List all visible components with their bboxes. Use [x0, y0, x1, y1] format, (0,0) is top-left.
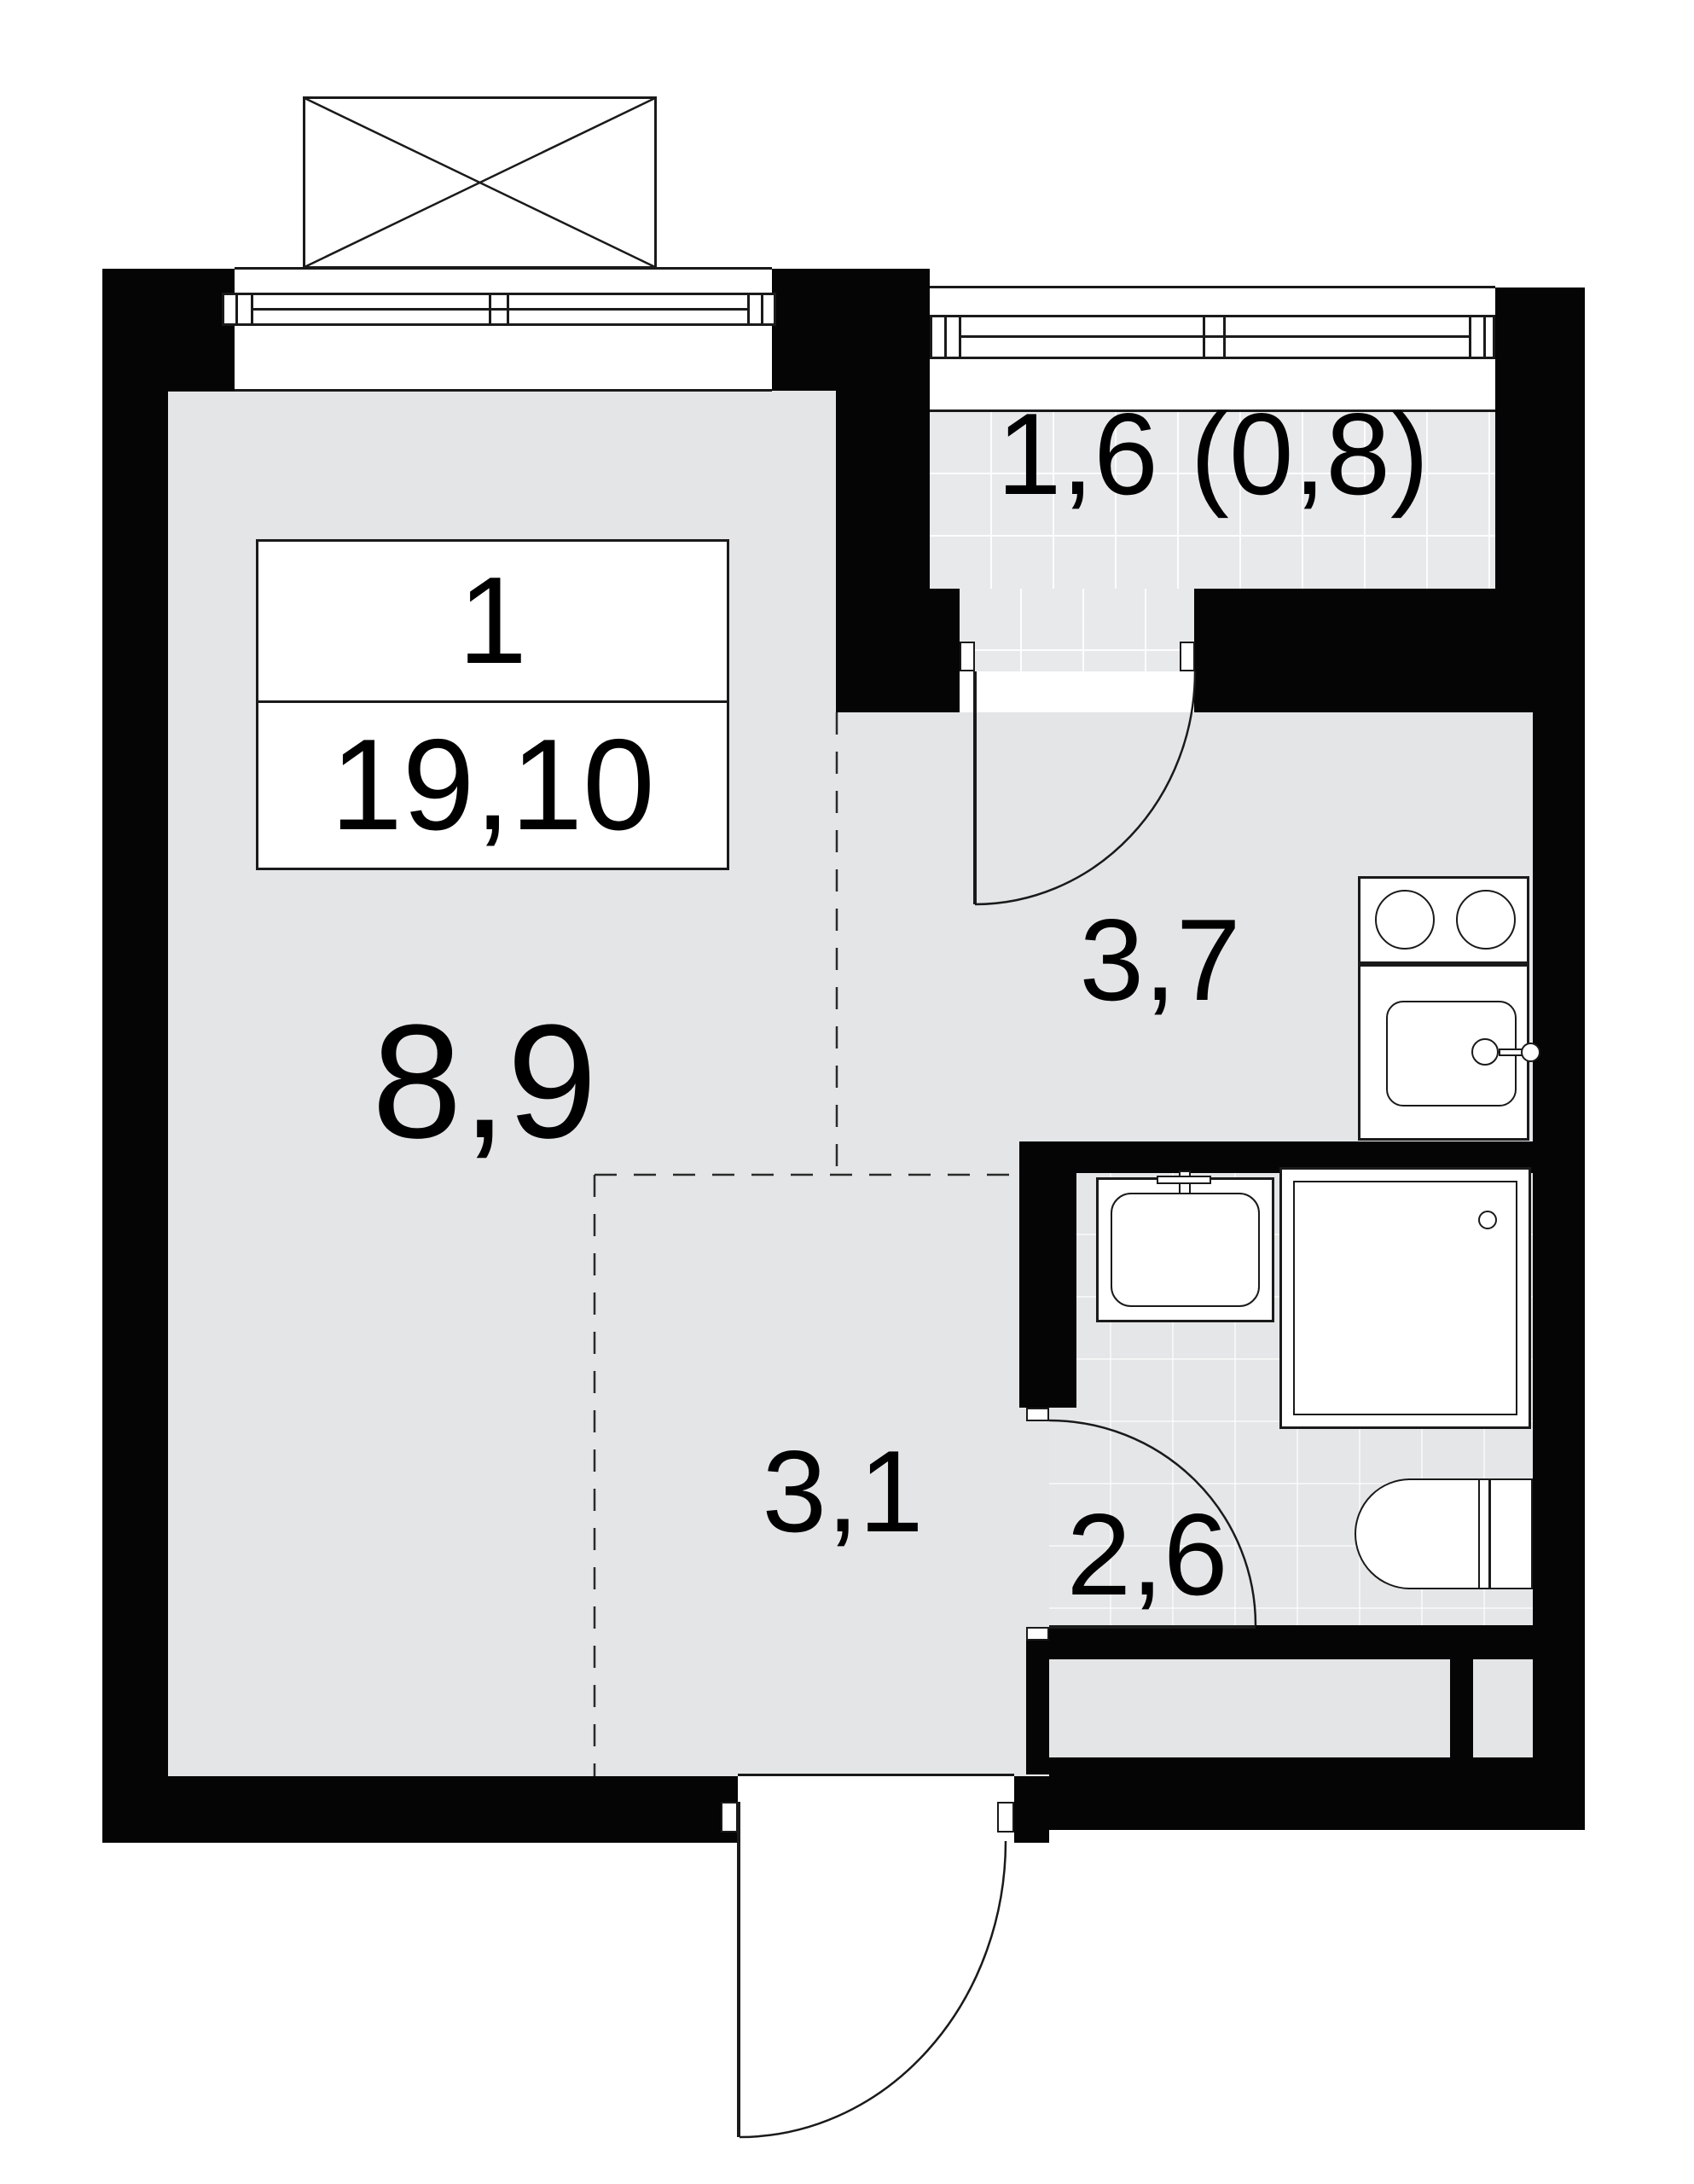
entrance-door-leaf [737, 1802, 740, 2137]
toilet-tank [1478, 1478, 1533, 1589]
unit-total-area: 19,10 [258, 703, 727, 868]
balcony-door-threshold [960, 589, 1194, 671]
toilet-bowl [1355, 1478, 1481, 1589]
entry-floor-edge [738, 1774, 1014, 1776]
balcony-door-jamb [1180, 642, 1195, 671]
wall-balcony-door-right [1194, 589, 1495, 712]
living-window-mullion [251, 293, 253, 326]
wall-balcony-door-left-stub [836, 589, 960, 712]
balcony-window-mullion [1203, 315, 1205, 359]
wall-window-right-header [772, 269, 930, 391]
ac-unit-marker [303, 96, 657, 269]
vestibule-niche-left [1049, 1659, 1450, 1757]
balcony-door-leaf [973, 671, 977, 904]
balcony-window-mullion [944, 315, 947, 359]
kitchen-area-label: 3,7 [1079, 902, 1240, 1018]
living-window-mullion [761, 293, 763, 326]
balcony-window-mid-rail [959, 335, 1469, 338]
bathroom-faucet-bar [1157, 1176, 1211, 1184]
entrance-door-jamb [997, 1802, 1014, 1833]
wall-bottom-entry-right [1014, 1776, 1049, 1843]
living-window-mullion [507, 293, 509, 326]
wall-balcony-right [1495, 288, 1585, 712]
entrance-door-swing-arc [740, 1841, 1006, 2137]
hall-area-label: 3,1 [762, 1433, 923, 1549]
bathroom-door-leaf [1049, 1625, 1256, 1629]
vestibule-niche-right [1473, 1659, 1533, 1757]
wall-bathroom-left-upper [1019, 1173, 1076, 1408]
unit-rooms-count: 1 [258, 542, 727, 703]
living-window-mid-rail [251, 308, 747, 311]
wall-top-left-corner [102, 269, 235, 391]
balcony-window-mullion [1469, 315, 1471, 359]
wall-right [1533, 712, 1585, 1830]
stove-burner [1375, 890, 1435, 950]
facade-line-balcony [930, 286, 1495, 288]
kitchen-faucet [1471, 1038, 1499, 1066]
wall-bottom-right [1049, 1757, 1585, 1830]
balcony-window-mullion [1483, 315, 1486, 359]
bathroom-door-threshold [1026, 1408, 1049, 1641]
balcony-door-jamb [960, 642, 975, 671]
wall-balcony-left [836, 391, 930, 589]
living-window-mullion [489, 293, 491, 326]
bathroom-door-jamb [1026, 1408, 1049, 1421]
wall-bathroom-bottom [1049, 1625, 1533, 1659]
floor-plan: 1 19,10 8,9 3,7 3,1 2,6 1,6 (0,8) [0, 0, 1694, 2184]
living-window-mullion [747, 293, 750, 326]
bathroom-door-jamb [1026, 1627, 1049, 1641]
entrance-door-jamb [721, 1802, 738, 1833]
living-room-area-label: 8,9 [372, 1001, 597, 1163]
wall-bathroom-left-lower [1026, 1641, 1049, 1774]
living-window-mullion [235, 293, 238, 326]
wall-left [102, 269, 168, 1843]
shower-drain [1478, 1211, 1497, 1229]
kitchen-faucet-knob [1521, 1043, 1540, 1062]
wall-bottom-left [102, 1776, 738, 1843]
stove-burner [1456, 890, 1516, 950]
living-sill-edge [168, 389, 772, 392]
unit-info-box: 1 19,10 [256, 539, 729, 870]
toilet-tank-line [1488, 1478, 1491, 1589]
balcony-area-label: 1,6 (0,8) [997, 396, 1429, 512]
balcony-window-mullion [959, 315, 961, 359]
balcony-window-mullion [1223, 315, 1226, 359]
bathroom-sink-bowl [1111, 1193, 1260, 1307]
bathroom-area-label: 2,6 [1066, 1496, 1227, 1612]
wall-vestibule-divider [1450, 1659, 1473, 1757]
